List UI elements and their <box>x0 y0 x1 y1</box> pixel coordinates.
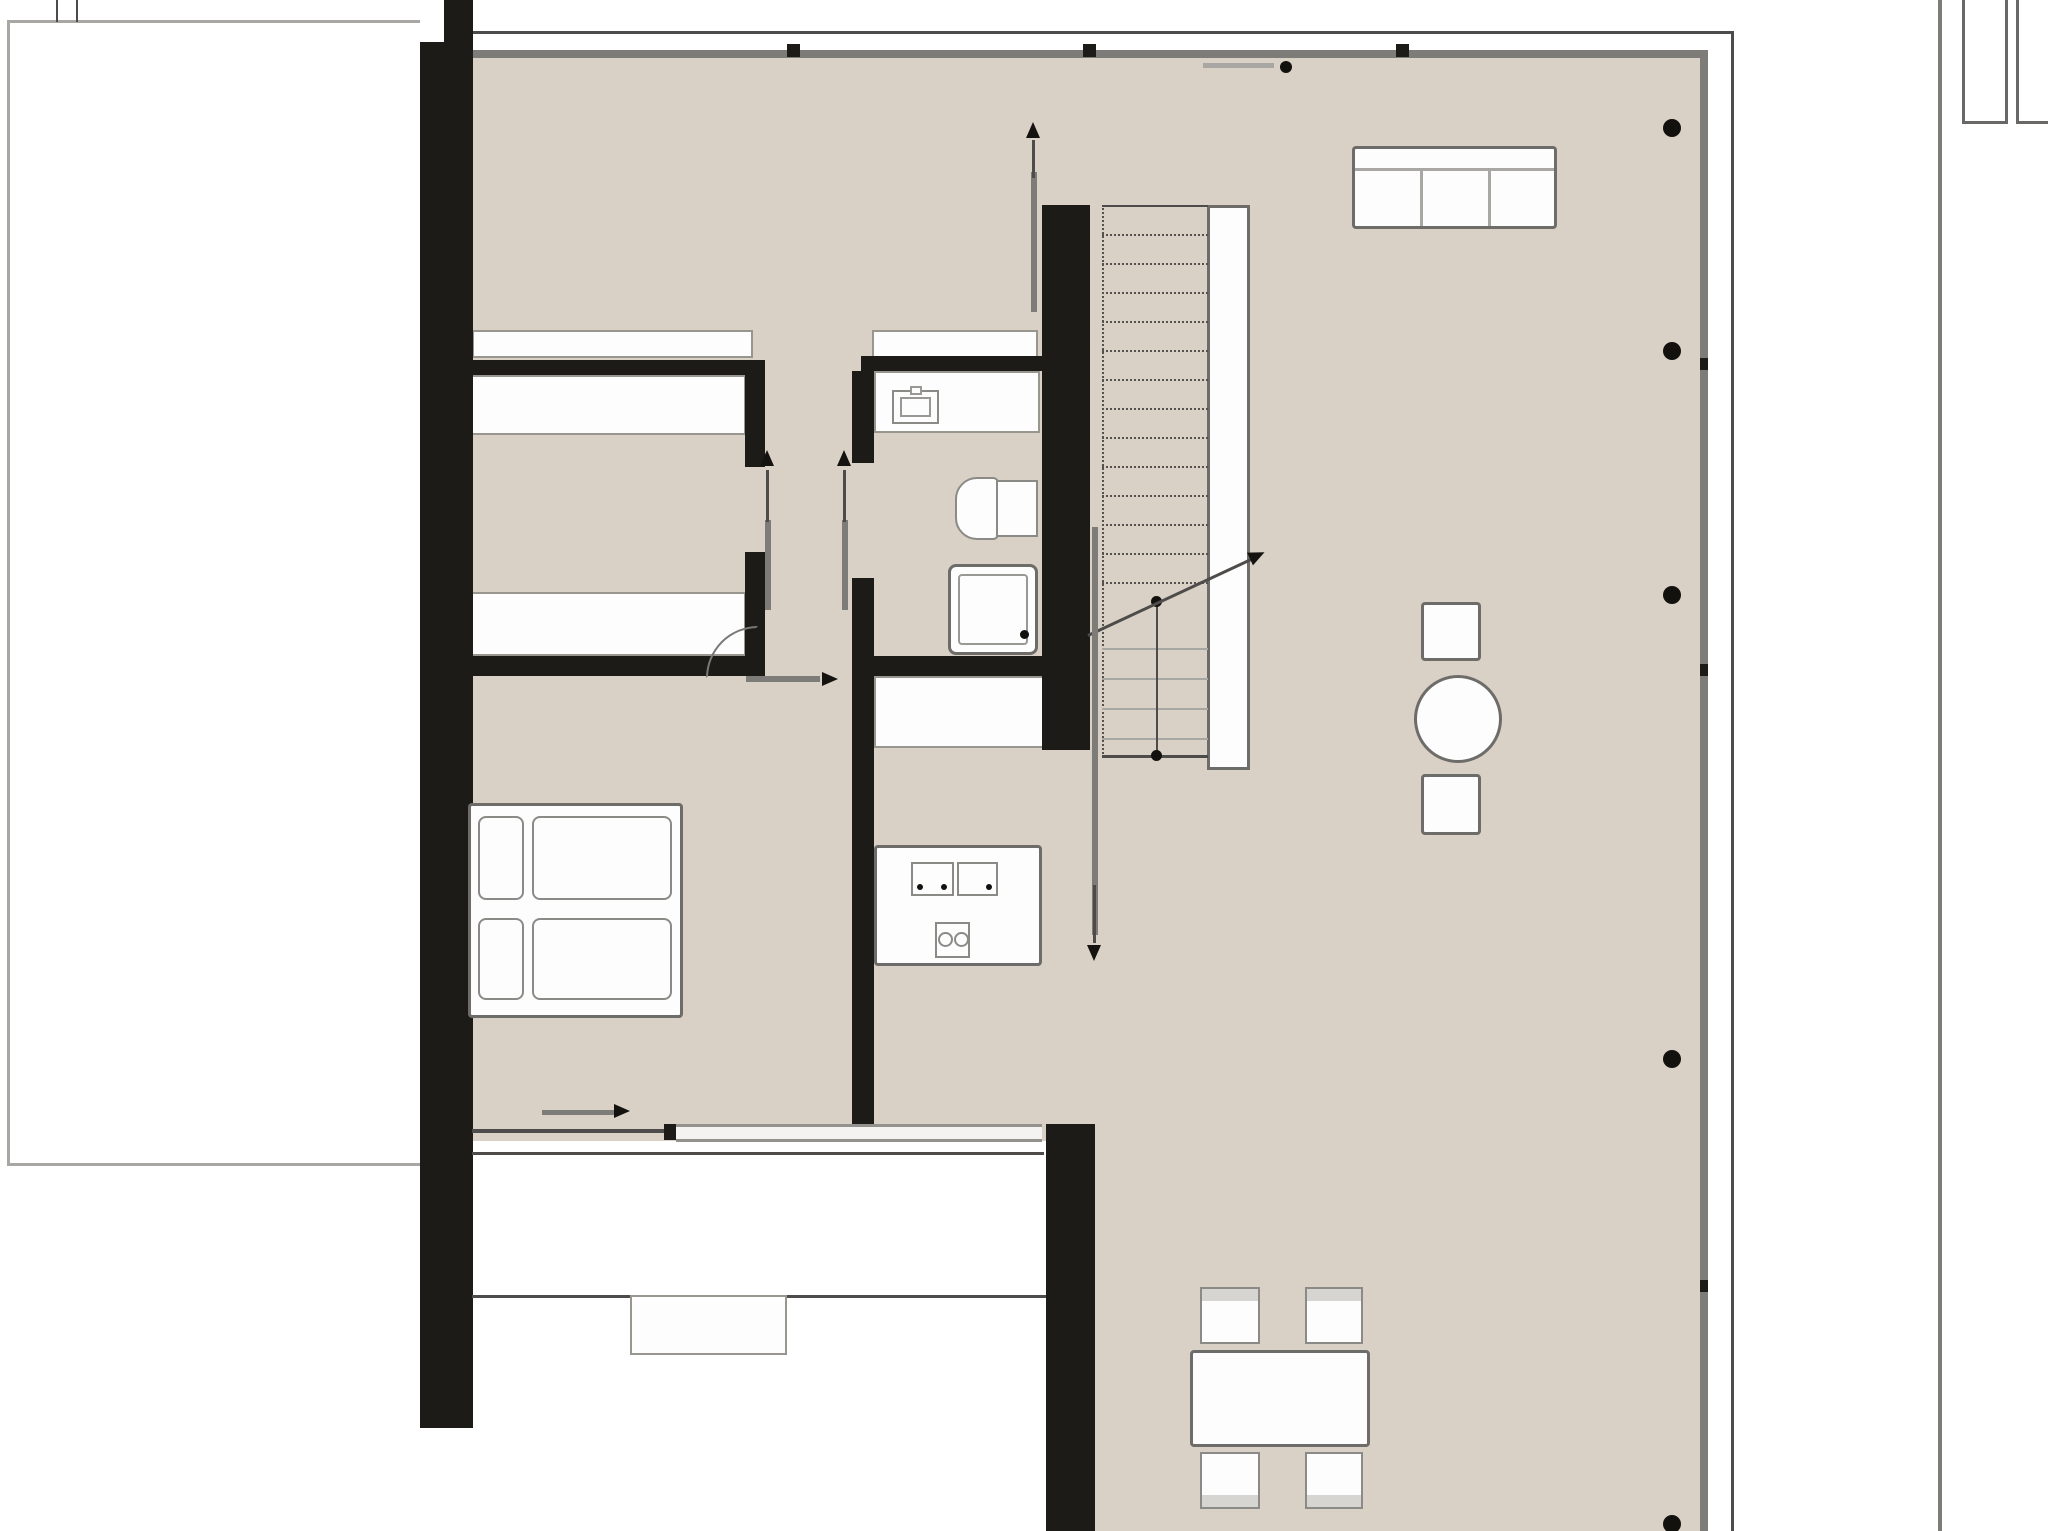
tread-4 <box>1102 321 1208 323</box>
bedroom-east-wall-upper <box>852 371 874 463</box>
dressing-top-band <box>466 375 746 435</box>
door-shaft-wc <box>843 470 846 522</box>
ne-structure-box1 <box>1962 0 2008 124</box>
kitchen-south-window <box>676 1124 1042 1142</box>
tread-7 <box>1102 408 1208 410</box>
door-leaf-bedroom <box>746 676 820 682</box>
toilet-tank <box>996 480 1038 537</box>
west-wall <box>420 0 473 1428</box>
bath-south-wall <box>852 656 1044 676</box>
door-leaf-dressing <box>765 520 771 610</box>
site-right-line <box>1938 0 1942 1531</box>
sofa <box>1352 146 1557 229</box>
door-leaf-hall-slider <box>1092 527 1098 935</box>
tread-12 <box>1102 553 1208 555</box>
door-shaft-dressing <box>766 470 769 522</box>
window-jamb-3 <box>1396 44 1409 57</box>
bed-mattress-1 <box>532 816 672 900</box>
south-sill-line <box>472 1152 1044 1155</box>
central-wall <box>1042 205 1090 750</box>
door-arrow-entry <box>1026 122 1040 138</box>
stair-left-edge <box>1102 205 1104 758</box>
shower-drain <box>1020 630 1029 639</box>
dressing-bottom-band <box>466 592 746 656</box>
dining-chair-tl-back <box>1202 1289 1258 1301</box>
door-shaft-bed-slider <box>542 1110 614 1115</box>
closet-band-right <box>872 330 1038 358</box>
tread-13 <box>1102 582 1208 584</box>
stool-north <box>1421 602 1481 661</box>
tread-11 <box>1102 524 1208 526</box>
door-leaf-wc <box>842 520 848 610</box>
east-perimeter-wall <box>1700 50 1708 1531</box>
sofa-back-line <box>1355 168 1554 171</box>
door-arrow-wc <box>837 450 851 466</box>
tread-9 <box>1102 466 1208 468</box>
island-burner-2 <box>954 932 969 947</box>
ne-structure-box2 <box>2016 0 2048 124</box>
island-dot-2 <box>941 884 947 890</box>
bed-pillow-1 <box>478 816 524 900</box>
living-west-wall <box>1046 1124 1095 1531</box>
east-wall-tick-2 <box>1700 664 1708 676</box>
east-wall-tick-1 <box>1700 358 1708 370</box>
sofa-divider-2 <box>1488 170 1491 226</box>
tread-low-4 <box>1102 738 1208 740</box>
bed-pillow-2 <box>478 918 524 1000</box>
column-dot-e3 <box>1663 586 1681 604</box>
door-arrow-dressing <box>760 450 774 466</box>
tread-low-2 <box>1102 678 1208 680</box>
tread-low-3 <box>1102 708 1208 710</box>
tread-low-1 <box>1102 648 1208 650</box>
bedroom-slider-cap <box>664 1124 676 1140</box>
door-shaft-entry <box>1032 140 1035 178</box>
tread-8 <box>1102 437 1208 439</box>
wc-sink-basin <box>900 397 931 417</box>
tread-10 <box>1102 495 1208 497</box>
island-sink-unit <box>911 862 954 896</box>
bath-niche-band <box>874 676 1044 748</box>
dining-chair-bl-back <box>1202 1495 1258 1507</box>
tread-6 <box>1102 379 1208 381</box>
terrace-west-top-line <box>7 20 430 23</box>
tread-2 <box>1102 263 1208 265</box>
door-arrow-bed-slider <box>614 1104 630 1118</box>
tread-1 <box>1102 234 1208 236</box>
toilet-bowl <box>955 477 999 540</box>
island-dot-1 <box>917 884 923 890</box>
column-dot-e4 <box>1663 1050 1681 1068</box>
gate-tick-b <box>76 0 78 22</box>
closet-wall-left <box>420 360 765 375</box>
door-arrow-hall-slider <box>1087 945 1101 961</box>
column-dot-e5 <box>1663 1515 1681 1531</box>
island-cook-unit <box>957 862 998 896</box>
window-jamb-2 <box>1083 44 1096 57</box>
door-leaf-entry <box>1031 172 1037 312</box>
top-door-dash <box>1203 63 1274 68</box>
outer-roof-line-top <box>430 31 1734 34</box>
window-jamb-1 <box>787 44 800 57</box>
closet-wall-right <box>861 356 1042 371</box>
terrace-step <box>630 1295 787 1355</box>
bedroom-north-wall <box>420 656 755 676</box>
shower-inner <box>958 574 1028 645</box>
column-dot-e1 <box>1663 119 1681 137</box>
outer-roof-line-right <box>1731 31 1734 1531</box>
column-dot-e2 <box>1663 342 1681 360</box>
door-shaft-hall-slider <box>1093 885 1096 943</box>
terrace-west-left-line <box>7 20 10 1166</box>
stair-walkline <box>1156 600 1158 756</box>
door-arrow-bedroom <box>822 672 838 686</box>
island-burner-1 <box>938 932 953 947</box>
stair-rail-strip <box>1207 205 1250 770</box>
top-door-dot <box>1280 61 1292 73</box>
west-wall-notch <box>420 0 444 42</box>
tread-5 <box>1102 350 1208 352</box>
floor-plan-canvas <box>0 0 2048 1531</box>
sofa-divider-1 <box>1420 170 1423 226</box>
dining-chair-tr-back <box>1307 1289 1361 1301</box>
round-table <box>1414 675 1502 763</box>
east-wall-tick-3 <box>1700 1280 1708 1292</box>
stair-top-edge <box>1102 205 1208 207</box>
tread-3 <box>1102 292 1208 294</box>
bed-mattress-2 <box>532 918 672 1000</box>
dining-table <box>1190 1350 1370 1447</box>
bedroom-slider-line <box>472 1129 664 1133</box>
closet-band-left <box>472 330 753 358</box>
stair-walkline-dot-bottom <box>1151 750 1162 761</box>
terrace-west-bottom-line <box>7 1163 473 1166</box>
island-dot-3 <box>986 884 992 890</box>
dining-chair-br-back <box>1307 1495 1361 1507</box>
stool-south <box>1421 774 1481 835</box>
wc-sink-tap <box>910 386 922 395</box>
gate-tick-a <box>56 0 58 22</box>
